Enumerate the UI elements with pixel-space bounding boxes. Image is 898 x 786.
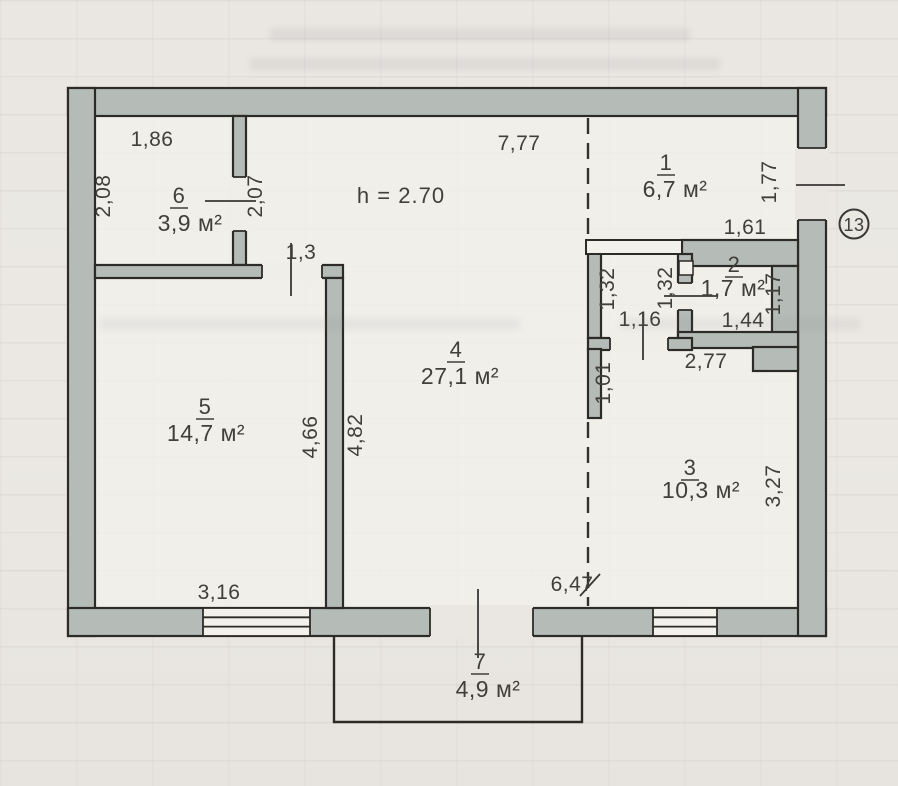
dim-482-label: 4,82: [344, 414, 367, 457]
ceiling-height-label: h = 2.70: [357, 183, 445, 208]
balcony-door-opening: [430, 605, 533, 639]
window-room3: [653, 608, 717, 636]
room-7-number: 7: [474, 649, 487, 674]
window-room5: [203, 608, 310, 636]
room-5-area: 14,7 м²: [167, 420, 245, 446]
door-opening-room5: [262, 262, 322, 281]
dim-277-label: 2,77: [685, 350, 728, 373]
dim-132b-label: 1,32: [654, 267, 677, 310]
page-bleed-smudge: [250, 58, 720, 70]
duct-notch: [679, 261, 693, 275]
room-4-number: 4: [450, 337, 463, 362]
dim-132a-label: 1,32: [596, 268, 619, 311]
room-3-area: 10,3 м²: [662, 477, 740, 503]
dim-777-label: 7,77: [498, 132, 541, 155]
wall-outer-left: [68, 88, 95, 636]
dim-316-label: 3,16: [198, 581, 241, 604]
dim-208-label: 2,08: [92, 175, 115, 218]
apartment-number-badge: 13: [840, 210, 869, 239]
wall-room2-bottom: [678, 332, 798, 348]
room-2-number: 2: [728, 252, 741, 277]
dim-101-label: 1,01: [592, 362, 615, 405]
dim-13-label: 1,3: [286, 241, 317, 264]
wall-room3-step: [753, 347, 798, 371]
room-2-area: 1,7 м²: [701, 275, 766, 301]
dim-186-label: 1,86: [131, 128, 174, 151]
room-1-number: 1: [660, 150, 673, 175]
room-4-area: 27,1 м²: [421, 363, 499, 389]
door-opening-vestibule: [610, 335, 668, 352]
page-bleed-smudge: [270, 28, 690, 41]
dim-207-label: 2,07: [244, 175, 267, 218]
dim-647-label: 6,47: [551, 573, 594, 596]
room-5-number: 5: [199, 394, 212, 419]
room-1-area: 6,7 м²: [643, 176, 708, 202]
floor-plan-sheet: 6 3,9 м² 1,86 2,08 2,07 1,3 5 14,7 м² 4,…: [0, 0, 898, 786]
room-7-area: 4,9 м²: [456, 676, 521, 702]
dim-117-label: 1,17: [762, 273, 785, 316]
dim-161-label: 1,61: [724, 216, 767, 239]
dim-327-label: 3,27: [762, 465, 785, 508]
room-6-area: 3,9 м²: [158, 210, 223, 236]
floor-plan-drawing: 6 3,9 м² 1,86 2,08 2,07 1,3 5 14,7 м² 4,…: [0, 0, 898, 786]
badge-value: 13: [843, 215, 864, 235]
room-6-number: 6: [173, 183, 186, 208]
wall-outer-top: [68, 88, 826, 116]
entrance-opening: [795, 148, 829, 220]
page-bleed-smudge: [100, 318, 520, 330]
dim-177-label: 1,77: [758, 161, 781, 204]
partition-room1-bottom: [586, 240, 682, 254]
page-bleed-smudge: [620, 318, 860, 330]
dim-466-label: 4,66: [299, 416, 322, 459]
